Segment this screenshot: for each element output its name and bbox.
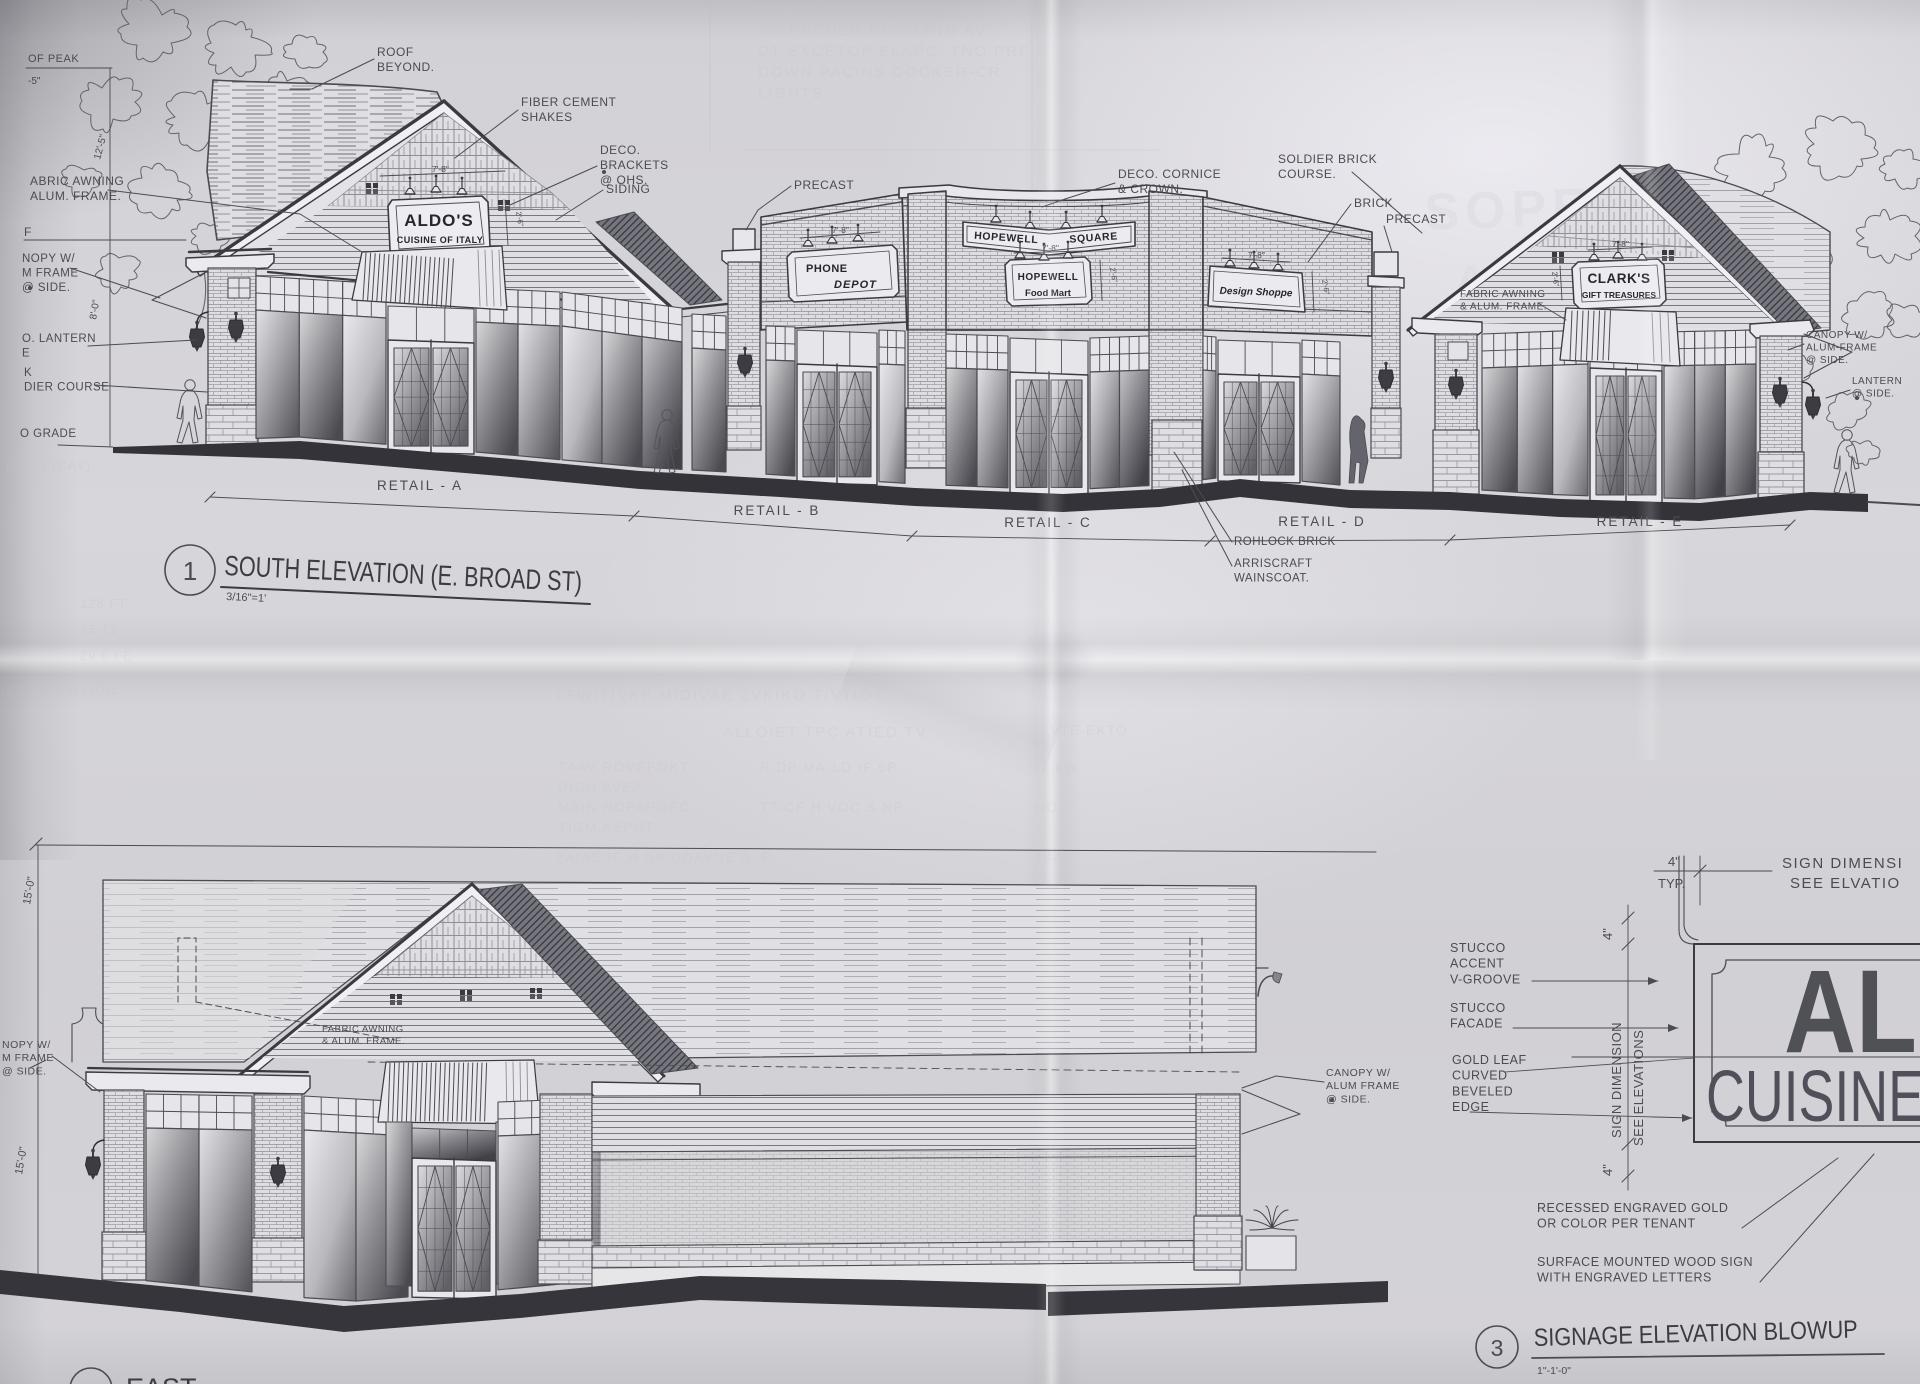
- svg-text:ROHLOCK BRICK: ROHLOCK BRICK: [1234, 536, 1336, 548]
- svg-text:CUISINE OF ITALY: CUISINE OF ITALY: [397, 235, 484, 245]
- svg-text:1"-1'-0": 1"-1'-0": [1537, 1365, 1571, 1377]
- svg-text:ALLOIET TPC ATIED TV: ALLOIET TPC ATIED TV: [723, 724, 928, 741]
- svg-text:TYP.: TYP.: [1658, 876, 1685, 891]
- svg-text:SC-PQ A A LIGN: SC-PQ A A LIGN: [6, 683, 117, 698]
- svg-text:SEE ELEVATIONS: SEE ELEVATIONS: [1631, 1030, 1646, 1146]
- svg-text:7'-8": 7'-8": [1248, 250, 1265, 260]
- svg-text:12'-5": 12'-5": [92, 133, 109, 161]
- svg-text:128 FT: 128 FT: [80, 596, 127, 611]
- svg-text:SIGNAGE ELEVATION BLOWUP: SIGNAGE ELEVATION BLOWUP: [1533, 1316, 1858, 1352]
- svg-text:DECO.BRACKETS@ OHS.: DECO.BRACKETS@ OHS.: [600, 143, 669, 187]
- svg-text:DEPOT: DEPOT: [834, 279, 877, 291]
- svg-text:FIBER CEMENTSHAKES: FIBER CEMENTSHAKES: [521, 95, 617, 124]
- svg-text:R DP MA-LD IF 6P: R DP MA-LD IF 6P: [760, 760, 898, 775]
- svg-text:PAIAE IF H DP DOAVNE A: PAIAE IF H DP DOAVNE A -P: [556, 850, 772, 865]
- svg-text:GOLD LEAFCURVEDBEVELEDEDGE: GOLD LEAFCURVEDBEVELEDEDGE: [1452, 1053, 1527, 1114]
- svg-text:3/16"=1': 3/16"=1': [226, 591, 266, 605]
- svg-text:SIGN DIMENSION: SIGN DIMENSION: [1609, 1022, 1624, 1138]
- svg-text:PRECAST: PRECAST: [1386, 212, 1446, 226]
- svg-text:ARRISCRAFTWAINSCOAT.: ARRISCRAFTWAINSCOAT.: [1234, 558, 1312, 584]
- svg-text:SURFACE MOUNTED WOOD SIGNWITH: SURFACE MOUNTED WOOD SIGNWITH ENGRAVED L…: [1537, 1255, 1753, 1285]
- svg-text:4": 4": [1600, 1164, 1615, 1176]
- svg-text:1: 1: [183, 556, 197, 586]
- svg-text:7'-8": 7'-8": [1612, 239, 1629, 249]
- svg-text:15'-0": 15'-0": [21, 876, 38, 906]
- svg-text:PRECAST: PRECAST: [794, 178, 854, 192]
- svg-text:RETAIL - D: RETAIL - D: [1278, 514, 1366, 529]
- svg-text:15'-0": 15'-0": [13, 1146, 30, 1176]
- svg-text:PE A4 (CAY): PE A4 (CAY): [6, 458, 91, 473]
- svg-text:F: F: [24, 225, 31, 239]
- svg-text:LANTERN@ SIDE.: LANTERN@ SIDE.: [1852, 376, 1902, 400]
- svg-text:DOWN PACINS DOCKER-CR: DOWN PACINS DOCKER-CR: [758, 64, 1001, 81]
- svg-text:STUCCOFACADE: STUCCOFACADE: [1450, 1001, 1506, 1031]
- svg-text:SIDING: SIDING: [606, 182, 650, 196]
- svg-text:O GRADE: O GRADE: [20, 428, 77, 440]
- svg-text:TT-CF H VOC S NP: TT-CF H VOC S NP: [760, 800, 904, 815]
- svg-text:NOPY W/M FRAME@ SIDE.: NOPY W/M FRAME@ SIDE.: [2, 1039, 54, 1077]
- svg-text:CUISINE: CUISINE: [1706, 1057, 1920, 1137]
- svg-text:FABRIC AWNING& ALUM. FRAME.: FABRIC AWNING& ALUM. FRAME.: [1460, 289, 1547, 313]
- svg-text:8'-0": 8'-0": [88, 299, 102, 321]
- svg-text:DIGH AVEA: DIGH AVEA: [558, 780, 643, 795]
- svg-text:TAAV ROVEPOKT: TAAV ROVEPOKT: [558, 760, 690, 775]
- svg-text:MAIN NOPAPGEC: MAIN NOPAPGEC: [558, 800, 691, 815]
- svg-text:SOLDIER BRICKCOURSE.: SOLDIER BRICKCOURSE.: [1278, 152, 1377, 181]
- svg-text:TIGM AEPHT: TIGM AEPHT: [558, 820, 655, 835]
- svg-text:STUCCOACCENTV-GROOVE: STUCCOACCENTV-GROOVE: [1450, 941, 1521, 986]
- svg-text:OF PEAK: OF PEAK: [28, 53, 79, 65]
- svg-text:CANOPY W/ALUM-FRAME@ SIDE.: CANOPY W/ALUM-FRAME@ SIDE.: [1806, 330, 1877, 366]
- svg-text:-5": -5": [28, 76, 41, 87]
- svg-text:SAALE CA RENTERED IM RE: SAALE CA RENTERED IM RE: [758, 1, 1009, 18]
- svg-text:ALDO'S: ALDO'S: [404, 211, 474, 230]
- svg-text:CANOPY W/ALUM FRAME@ SIDE.: CANOPY W/ALUM FRAME@ SIDE.: [1326, 1067, 1400, 1105]
- svg-text:EAST: EAST: [126, 1373, 197, 1384]
- svg-text:7'-8": 7'-8": [432, 164, 449, 174]
- svg-text:RECESSED ENGRAVED GOLDOR COLOR: RECESSED ENGRAVED GOLDOR COLOR PER TENAN…: [1537, 1201, 1728, 1231]
- svg-text:3: 3: [1491, 1335, 1504, 1361]
- svg-text:RETAIL - B: RETAIL - B: [734, 503, 821, 518]
- svg-text:KDIER COURSE: KDIER COURSE: [24, 367, 109, 393]
- svg-text:LIGHTS: LIGHTS: [758, 85, 824, 102]
- svg-text:LFWITIVKE MIDIVAE ZVKIKO TI: LFWITIVKE MIDIVAE ZVKIKO TIVTIOT: [556, 687, 884, 704]
- svg-text:7'-8": 7'-8": [832, 225, 849, 235]
- svg-text:TO PECHER HC-PIANO AV: TO PECHER HC-PIANO AV: [758, 22, 987, 39]
- svg-text:SIGN DIMENSI: SIGN DIMENSI: [1782, 855, 1903, 872]
- svg-text:4": 4": [1600, 928, 1615, 940]
- svg-text:O. LANTERNE: O. LANTERNE: [22, 333, 96, 359]
- svg-text:BRICK: BRICK: [1354, 196, 1393, 210]
- svg-text:RETAIL - A: RETAIL - A: [377, 478, 463, 493]
- svg-text:ROOFBEYOND.: ROOFBEYOND.: [377, 45, 435, 74]
- svg-text:25.73: 25.73: [80, 622, 118, 637]
- svg-text:DT EXCETOP ELAPC. TNO PRF: DT EXCETOP ELAPC. TNO PRF: [758, 43, 1030, 60]
- svg-text:FABRIC AWNING& ALUM. FRAME.: FABRIC AWNING& ALUM. FRAME.: [322, 1024, 405, 1047]
- svg-text:SEE ELVATIO: SEE ELVATIO: [1790, 875, 1901, 892]
- svg-text:PHONE: PHONE: [806, 263, 848, 275]
- svg-text:4": 4": [1668, 854, 1680, 869]
